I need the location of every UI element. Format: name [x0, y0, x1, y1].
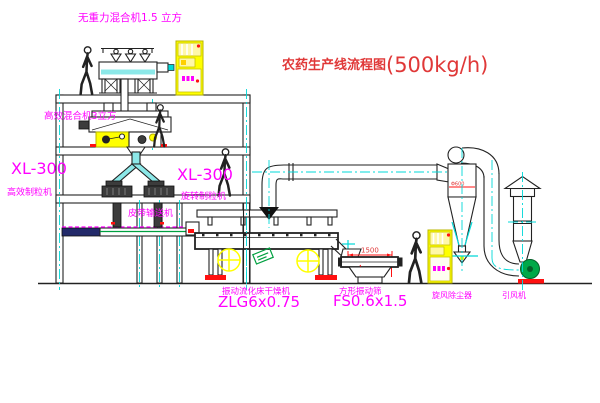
- y-feed-pipe: [111, 152, 161, 182]
- label-granulator-left-model: XL-300: [11, 159, 67, 178]
- label-granulator-left-name: 高效制粒机: [7, 186, 52, 198]
- vibrating-sieve: 1500: [338, 240, 403, 283]
- fluid-bed-dryer: [186, 210, 353, 280]
- title-text: 农药生产线流程图: [281, 57, 386, 73]
- title-capacity: (500kg/h): [386, 53, 488, 77]
- control-cabinet-upper: [176, 41, 203, 95]
- label-belt-conveyor: 皮带输送机: [128, 207, 173, 219]
- cyclone-dust-collector: Φ600: [446, 147, 499, 272]
- exhaust-duct: [252, 160, 452, 228]
- drawing-title: 农药生产线流程图 (500kg/h): [281, 53, 488, 77]
- label-mixer-mid: 高效混合机3立方: [44, 110, 117, 122]
- belt-conveyor: [62, 227, 195, 236]
- cad-drawing-canvas: Φ600 1500: [0, 0, 600, 403]
- label-cyclone: 旋风除尘器: [432, 290, 472, 300]
- fan-and-stack: [484, 160, 544, 290]
- label-granulator-right-name: 旋转制粒机: [181, 190, 226, 202]
- worker-ground: [409, 232, 421, 283]
- sieve-length-dim: 1500: [361, 247, 379, 255]
- label-dryer-model: ZLG6x0.75: [218, 293, 300, 311]
- cyclone-diameter-dim: Φ600: [451, 182, 464, 188]
- label-fan: 引风机: [502, 290, 526, 300]
- label-sieve-model: FS0.6x1.5: [333, 292, 407, 310]
- label-granulator-right-model: XL-300: [177, 165, 233, 184]
- control-cabinet-lower: [428, 230, 452, 283]
- flow-diagram: Φ600 1500: [0, 0, 600, 403]
- worker-top-floor: [81, 47, 92, 94]
- label-mixer-top: 无重力混合机1.5 立方: [78, 11, 182, 24]
